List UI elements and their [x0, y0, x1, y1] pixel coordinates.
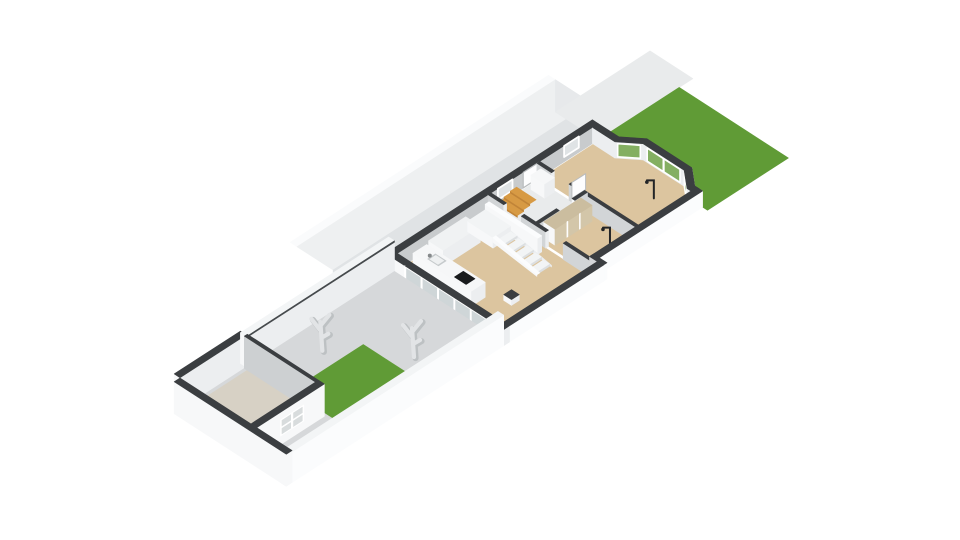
wardrobe-divider	[579, 213, 580, 229]
bay-mullion	[663, 158, 665, 172]
floorplan-viewer	[0, 0, 960, 540]
floorplan-3d-render	[0, 0, 960, 540]
wardrobe-divider	[567, 221, 568, 237]
boundary-wall-w	[286, 451, 292, 487]
floor-lamp-shade	[645, 180, 649, 184]
partition	[546, 230, 549, 248]
stair-balustrade	[538, 236, 542, 255]
bay-glass	[618, 144, 641, 159]
faucet-icon	[428, 254, 432, 258]
floor-lamp-shade	[601, 228, 605, 232]
